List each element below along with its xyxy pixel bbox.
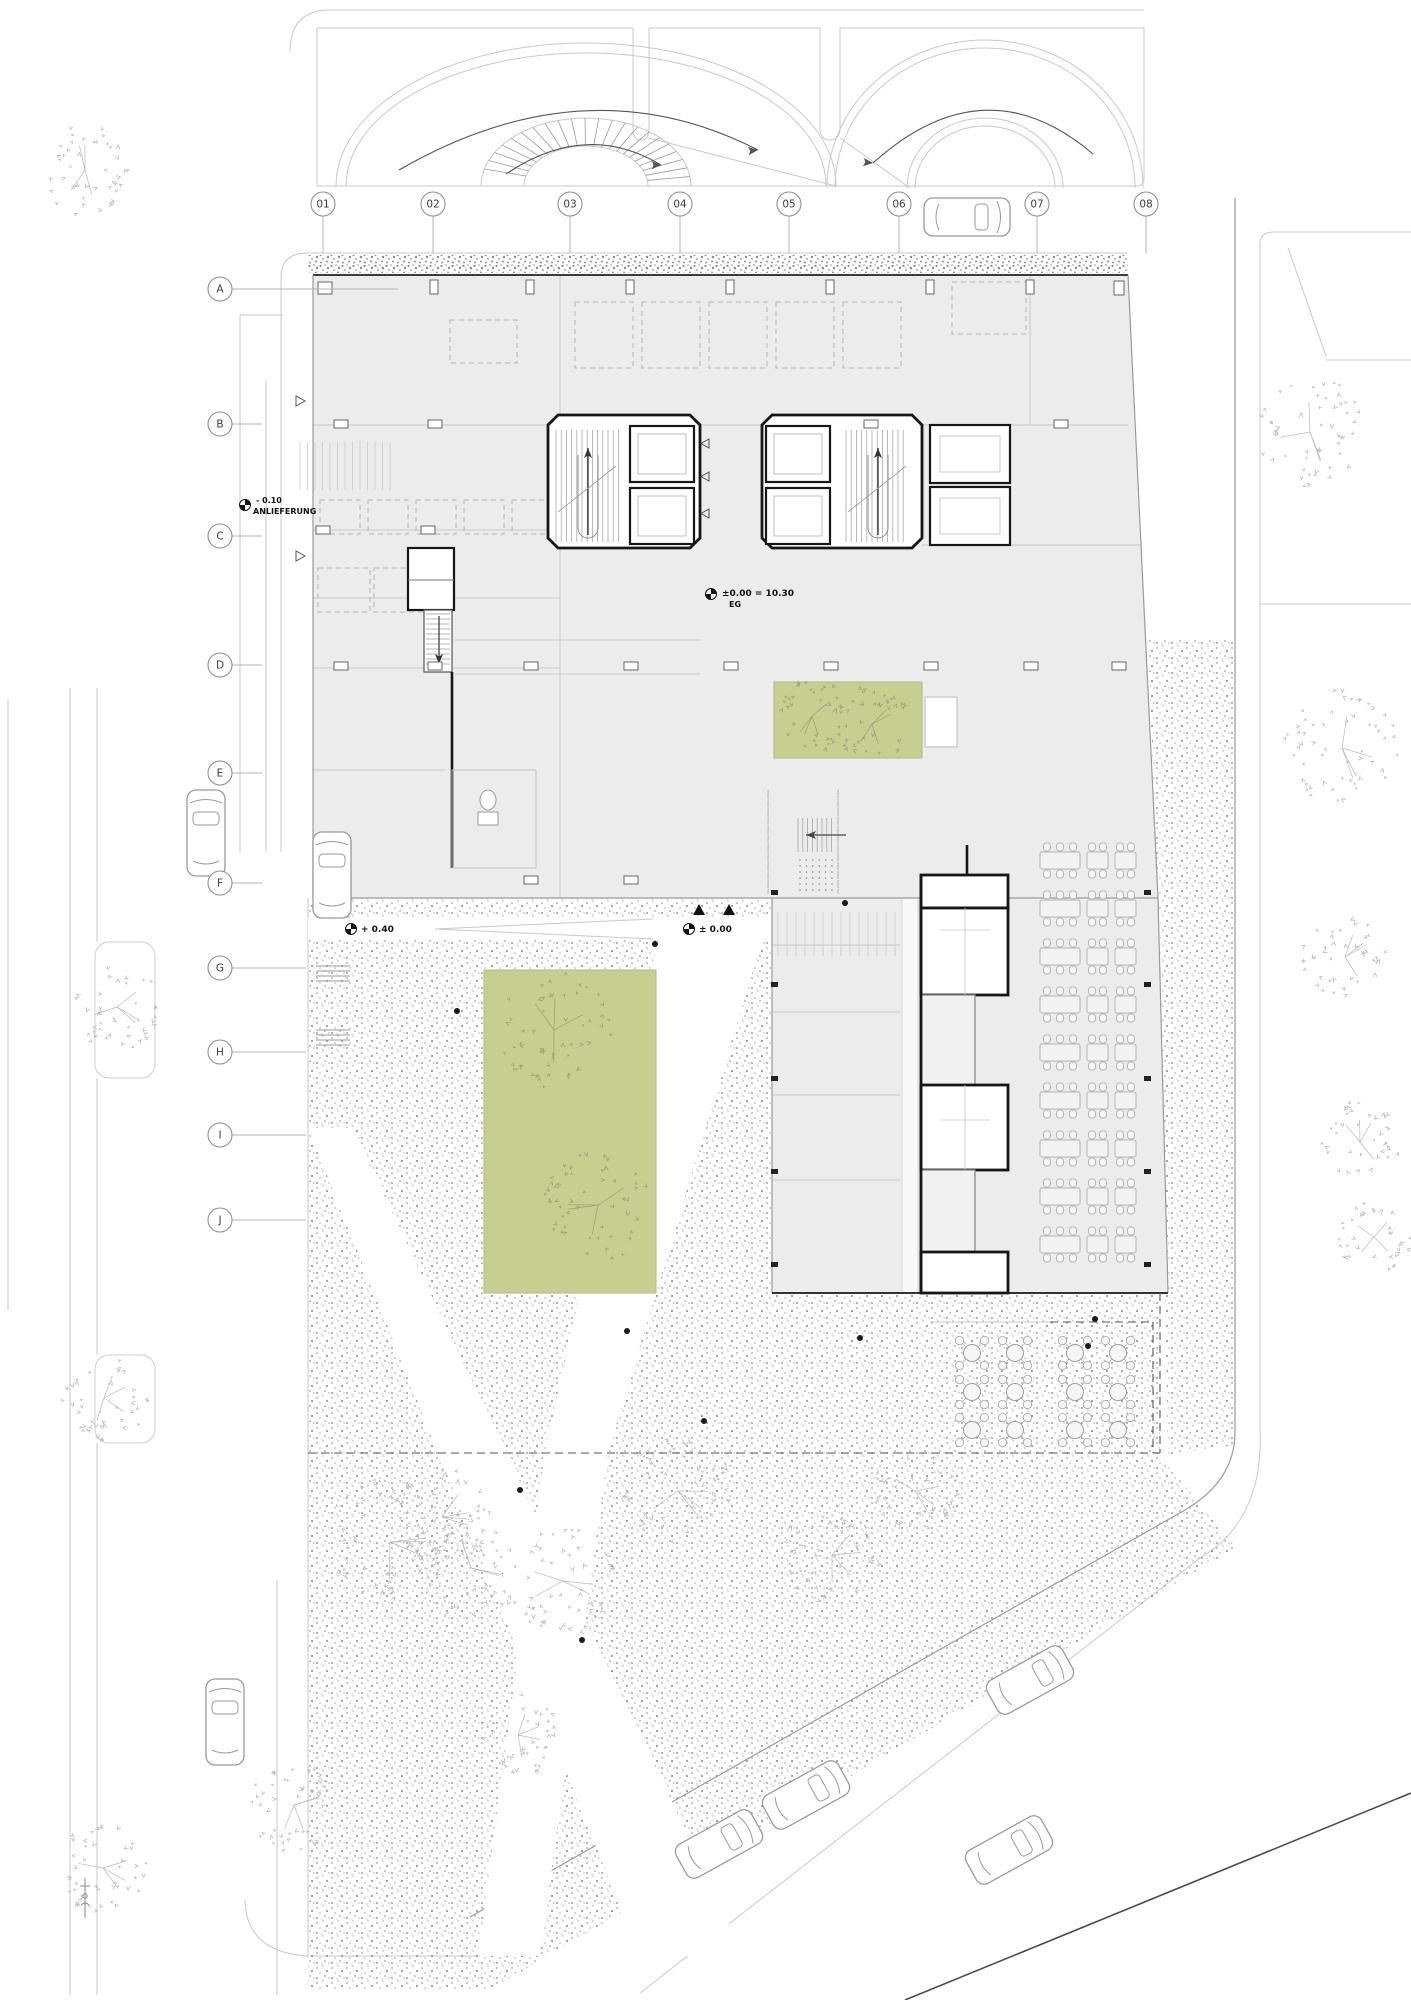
delivery-level-value: - 0.10 [256, 496, 282, 505]
courtyard-green-upper [774, 682, 922, 758]
plaza-dot [454, 1008, 460, 1014]
column [926, 280, 934, 294]
park-paving [308, 1455, 1236, 1990]
grid-row-label: G [216, 963, 224, 975]
plaza-dot [624, 1328, 630, 1334]
plaza-dot [1085, 1343, 1091, 1349]
column [1114, 281, 1124, 295]
grid-row-F: F [208, 871, 262, 895]
grid-row-label: I [218, 1130, 221, 1142]
ramp-right [827, 40, 1143, 188]
grid-row-D: D [208, 653, 262, 677]
overhang-column [1144, 1262, 1151, 1267]
overhang-column [771, 982, 778, 987]
plaza-dot [857, 1335, 863, 1341]
plaza-dot [1092, 1316, 1098, 1322]
column [864, 420, 878, 428]
grid-column-label: 05 [782, 199, 795, 211]
grid-row-E: E [208, 761, 262, 785]
stair-elevator-core-right [762, 415, 922, 548]
column [826, 280, 834, 294]
benchmark-plaza-zero [684, 924, 695, 935]
grid-column-01: 01 [311, 192, 335, 253]
column [824, 662, 838, 670]
neighbour-block-edges [1260, 248, 1411, 604]
grid-row-label: C [216, 531, 223, 543]
grid-column-07: 07 [1025, 192, 1049, 253]
ramp-arrow-out [399, 110, 758, 170]
grid-column-06: 06 [887, 192, 911, 253]
column [624, 876, 638, 884]
upper-court-skylight [925, 697, 957, 747]
overhang-column [771, 1169, 778, 1174]
benchmark-delivery [240, 500, 251, 511]
tree [1260, 382, 1360, 487]
parking-bay-1 [95, 942, 155, 1078]
grid-row-label: H [216, 1047, 224, 1059]
plaza-zero-value: ± 0.00 [699, 925, 732, 935]
eg-level-value: ±0.00 = 10.30 [722, 589, 794, 599]
sidewalk-west [266, 253, 308, 852]
restaurant-seating [1040, 843, 1136, 1262]
car [962, 1813, 1056, 1888]
car [206, 1679, 244, 1765]
grid-row-label: J [217, 1215, 221, 1227]
benchmark-eg [706, 589, 717, 600]
column [724, 662, 738, 670]
grid-row-label: D [216, 660, 224, 672]
overhang-column [771, 1076, 778, 1081]
column [428, 662, 442, 670]
grid-column-label: 04 [673, 199, 687, 211]
plan-stage: 0102030405060708ABCDEFGHIJ - 0.10 ANLIEF… [0, 0, 1411, 2000]
grid-column-label: 08 [1139, 199, 1152, 211]
car [187, 790, 225, 876]
column [334, 420, 348, 428]
grid-column-label: 06 [892, 199, 906, 211]
column [428, 420, 442, 428]
benchmark-plaza-high [346, 924, 357, 935]
floor-plan-svg: 0102030405060708ABCDEFGHIJ - 0.10 ANLIEF… [0, 0, 1411, 2000]
column [430, 280, 438, 294]
street-bottom-dark-edge [905, 1793, 1411, 2000]
column [524, 876, 538, 884]
parking-ramps [290, 10, 1144, 188]
plaza-high-value: + 0.40 [361, 925, 394, 935]
column [316, 526, 330, 534]
column [726, 280, 734, 294]
grid-row-B: B [208, 412, 262, 436]
plaza-dot [652, 941, 658, 947]
grid-row-label: E [217, 768, 224, 780]
grid-column-05: 05 [777, 192, 801, 253]
overhang-column [771, 1262, 778, 1267]
lower-corridor [902, 898, 918, 1293]
grid-column-08: 08 [1134, 192, 1158, 253]
delivery-label: ANLIEFERUNG [253, 507, 316, 516]
grid-row-label: F [217, 878, 223, 890]
north-paving-band [308, 255, 1128, 273]
eg-level-label: EG [729, 600, 741, 609]
door-triangle-west-2 [296, 551, 305, 561]
column [924, 662, 938, 670]
plaza-dot [842, 900, 848, 906]
car [313, 832, 351, 918]
overhang-column [1144, 982, 1151, 987]
column [1112, 662, 1126, 670]
tree [1321, 1101, 1400, 1175]
grid-column-03: 03 [558, 192, 582, 253]
grid-row-H: H [208, 1040, 306, 1064]
grid-row-label: A [216, 284, 224, 296]
ramp-left [336, 43, 836, 186]
grid-column-02: 02 [421, 192, 445, 253]
grid-row-J: J [208, 1208, 306, 1232]
plaza-dot [517, 1487, 523, 1493]
tree [67, 1824, 146, 1912]
grid-column-04: 04 [668, 192, 692, 253]
overhang-column [1144, 1076, 1151, 1081]
column [526, 280, 534, 294]
column [624, 662, 638, 670]
grid-row-label: B [216, 419, 223, 431]
overhang-column [1144, 1169, 1151, 1174]
door-triangle-west-1 [296, 396, 305, 406]
grid-column-label: 07 [1030, 199, 1043, 211]
tree [1283, 689, 1398, 803]
column [1024, 662, 1038, 670]
grid-row-I: I [208, 1123, 306, 1147]
grid-column-label: 03 [563, 199, 576, 211]
tree [1338, 1202, 1411, 1271]
column [334, 662, 348, 670]
grid-row-G: G [208, 956, 306, 980]
column [524, 662, 538, 670]
car [924, 198, 1010, 236]
tree [1301, 917, 1387, 998]
tree [50, 126, 129, 216]
delivery-lane [240, 315, 283, 852]
column [421, 526, 435, 534]
survey-marker [80, 1878, 90, 1918]
column [1054, 420, 1068, 428]
grid-column-label: 02 [426, 199, 439, 211]
overhang-column [1144, 890, 1151, 895]
stair-elevator-core-left [548, 415, 700, 548]
column [318, 282, 332, 294]
plaza-dot [701, 1418, 707, 1424]
grid-row-C: C [208, 524, 262, 548]
grid-column-label: 01 [316, 199, 329, 211]
column [1026, 280, 1034, 294]
column [626, 280, 634, 294]
overhang-column [771, 890, 778, 895]
plaza-dot [579, 1637, 585, 1643]
